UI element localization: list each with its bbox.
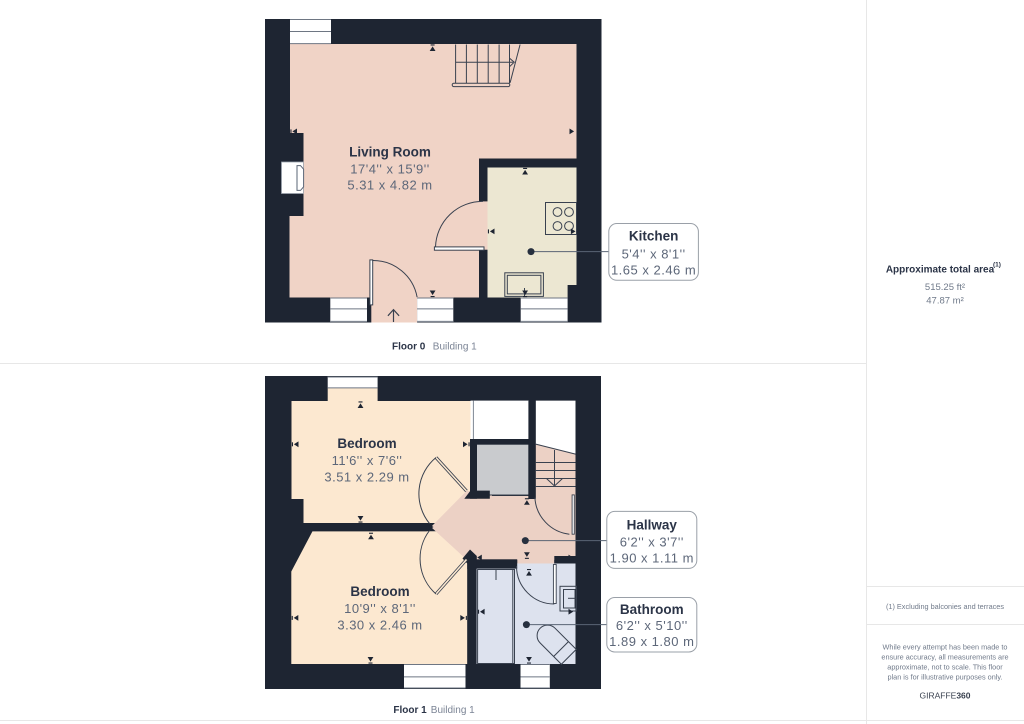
svg-text:Building 1: Building 1	[431, 705, 475, 716]
svg-text:Bedroom: Bedroom	[337, 436, 396, 451]
svg-text:Building 1: Building 1	[433, 342, 477, 353]
svg-text:Floor 0: Floor 0	[392, 342, 426, 353]
svg-text:ensure accuracy, all measureme: ensure accuracy, all measurements are	[881, 653, 1008, 662]
svg-text:Kitchen: Kitchen	[629, 229, 679, 244]
svg-text:6'2'' x 5'10'': 6'2'' x 5'10''	[616, 618, 688, 633]
svg-text:(1): (1)	[993, 262, 1001, 269]
svg-text:Bathroom: Bathroom	[620, 602, 684, 617]
svg-text:Hallway: Hallway	[627, 518, 678, 533]
svg-text:Bedroom: Bedroom	[350, 584, 409, 599]
svg-text:While every attempt has been m: While every attempt has been made to	[883, 643, 1008, 652]
svg-text:1.90 x 1.11 m: 1.90 x 1.11 m	[610, 551, 694, 566]
svg-text:10'9'' x 8'1'': 10'9'' x 8'1''	[344, 601, 416, 616]
svg-text:5'4'' x 8'1'': 5'4'' x 8'1''	[622, 247, 686, 262]
svg-text:6'2'' x 3'7'': 6'2'' x 3'7''	[620, 535, 684, 550]
svg-text:47.87 m²: 47.87 m²	[926, 296, 964, 307]
svg-text:Approximate total area: Approximate total area	[886, 265, 995, 276]
svg-text:Floor 1: Floor 1	[393, 705, 427, 716]
svg-text:3.51 x 2.29 m: 3.51 x 2.29 m	[324, 470, 409, 485]
svg-text:515.25 ft²: 515.25 ft²	[925, 282, 965, 293]
svg-text:11'6'' x 7'6'': 11'6'' x 7'6''	[332, 453, 403, 468]
svg-text:approximate, not to scale. Thi: approximate, not to scale. This floor	[887, 663, 1003, 672]
svg-text:3.30 x 2.46 m: 3.30 x 2.46 m	[337, 618, 422, 633]
svg-text:1.89 x 1.80 m: 1.89 x 1.80 m	[609, 634, 694, 649]
svg-text:1.65 x 2.46 m: 1.65 x 2.46 m	[611, 263, 696, 278]
svg-text:GIRAFFE360: GIRAFFE360	[919, 690, 970, 700]
svg-text:5.31 x 4.82 m: 5.31 x 4.82 m	[347, 178, 432, 193]
svg-text:plan is for illustrative purpo: plan is for illustrative purposes only.	[887, 673, 1002, 682]
svg-text:(1) Excluding balconies and te: (1) Excluding balconies and terraces	[886, 602, 1004, 611]
svg-text:17'4'' x 15'9'': 17'4'' x 15'9''	[350, 162, 430, 177]
svg-text:Living Room: Living Room	[349, 145, 431, 160]
